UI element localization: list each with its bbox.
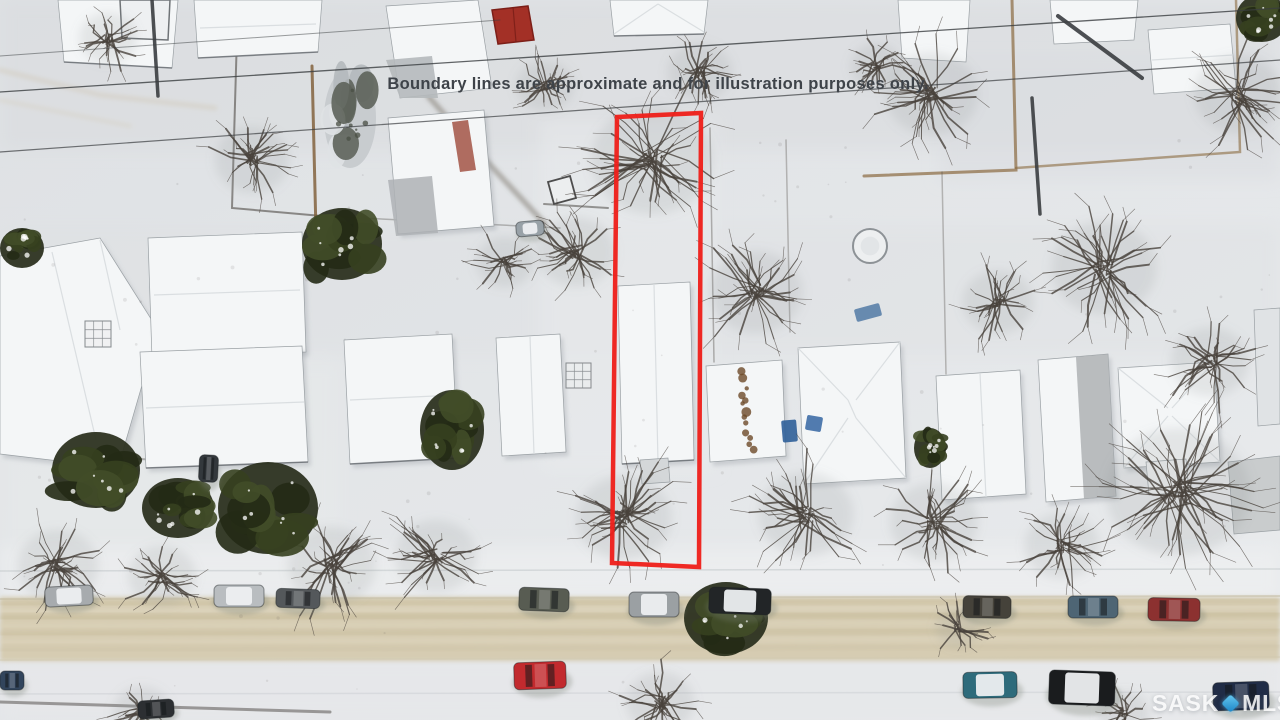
watermark-mls-text: MLS [1242,690,1280,717]
evergreen-tree [0,228,44,268]
aerial-photo [0,0,1280,720]
evergreen-tree [302,208,387,284]
car [960,671,1023,707]
aerial-listing-photo: Boundary lines are approximate and for i… [0,0,1280,720]
car [1146,598,1207,630]
house-roof [194,0,322,58]
house-roof [492,6,534,44]
watermark-sask-text: SASK [1152,690,1219,717]
car [212,585,270,615]
house-roof [798,342,909,488]
roof-vine [738,374,747,383]
car [1066,596,1124,626]
house-roof [148,232,309,362]
roof-vine [746,441,752,447]
sask-mls-watermark: SASK MLS ® [1152,690,1280,717]
blue-tarp [781,419,798,442]
roof-vine [747,435,753,441]
car [0,671,28,697]
mls-diamond-icon [1221,694,1239,712]
car [137,698,180,720]
car [961,596,1017,627]
roof-vine [750,446,758,454]
house-roof [1254,308,1280,426]
house-roof [618,282,697,468]
evergreen-tree [420,389,484,470]
trellis [566,363,591,388]
roof-vine [745,386,749,390]
trellis [85,321,111,347]
house-roof [548,176,576,204]
boundary-disclaimer-text: Boundary lines are approximate and for i… [387,75,928,94]
house-roof [936,370,1029,504]
house-roof [610,0,708,36]
evergreen-tree [216,462,319,557]
house-roof [140,346,311,472]
blue-tarp [805,415,823,433]
roof-vine [742,414,747,419]
house-roof [388,110,497,238]
roof-vine [743,420,748,425]
house-roof [496,334,569,460]
scene-root [0,0,1280,720]
roof-vine [740,401,744,405]
car [627,592,685,626]
roof-vine [742,429,749,436]
